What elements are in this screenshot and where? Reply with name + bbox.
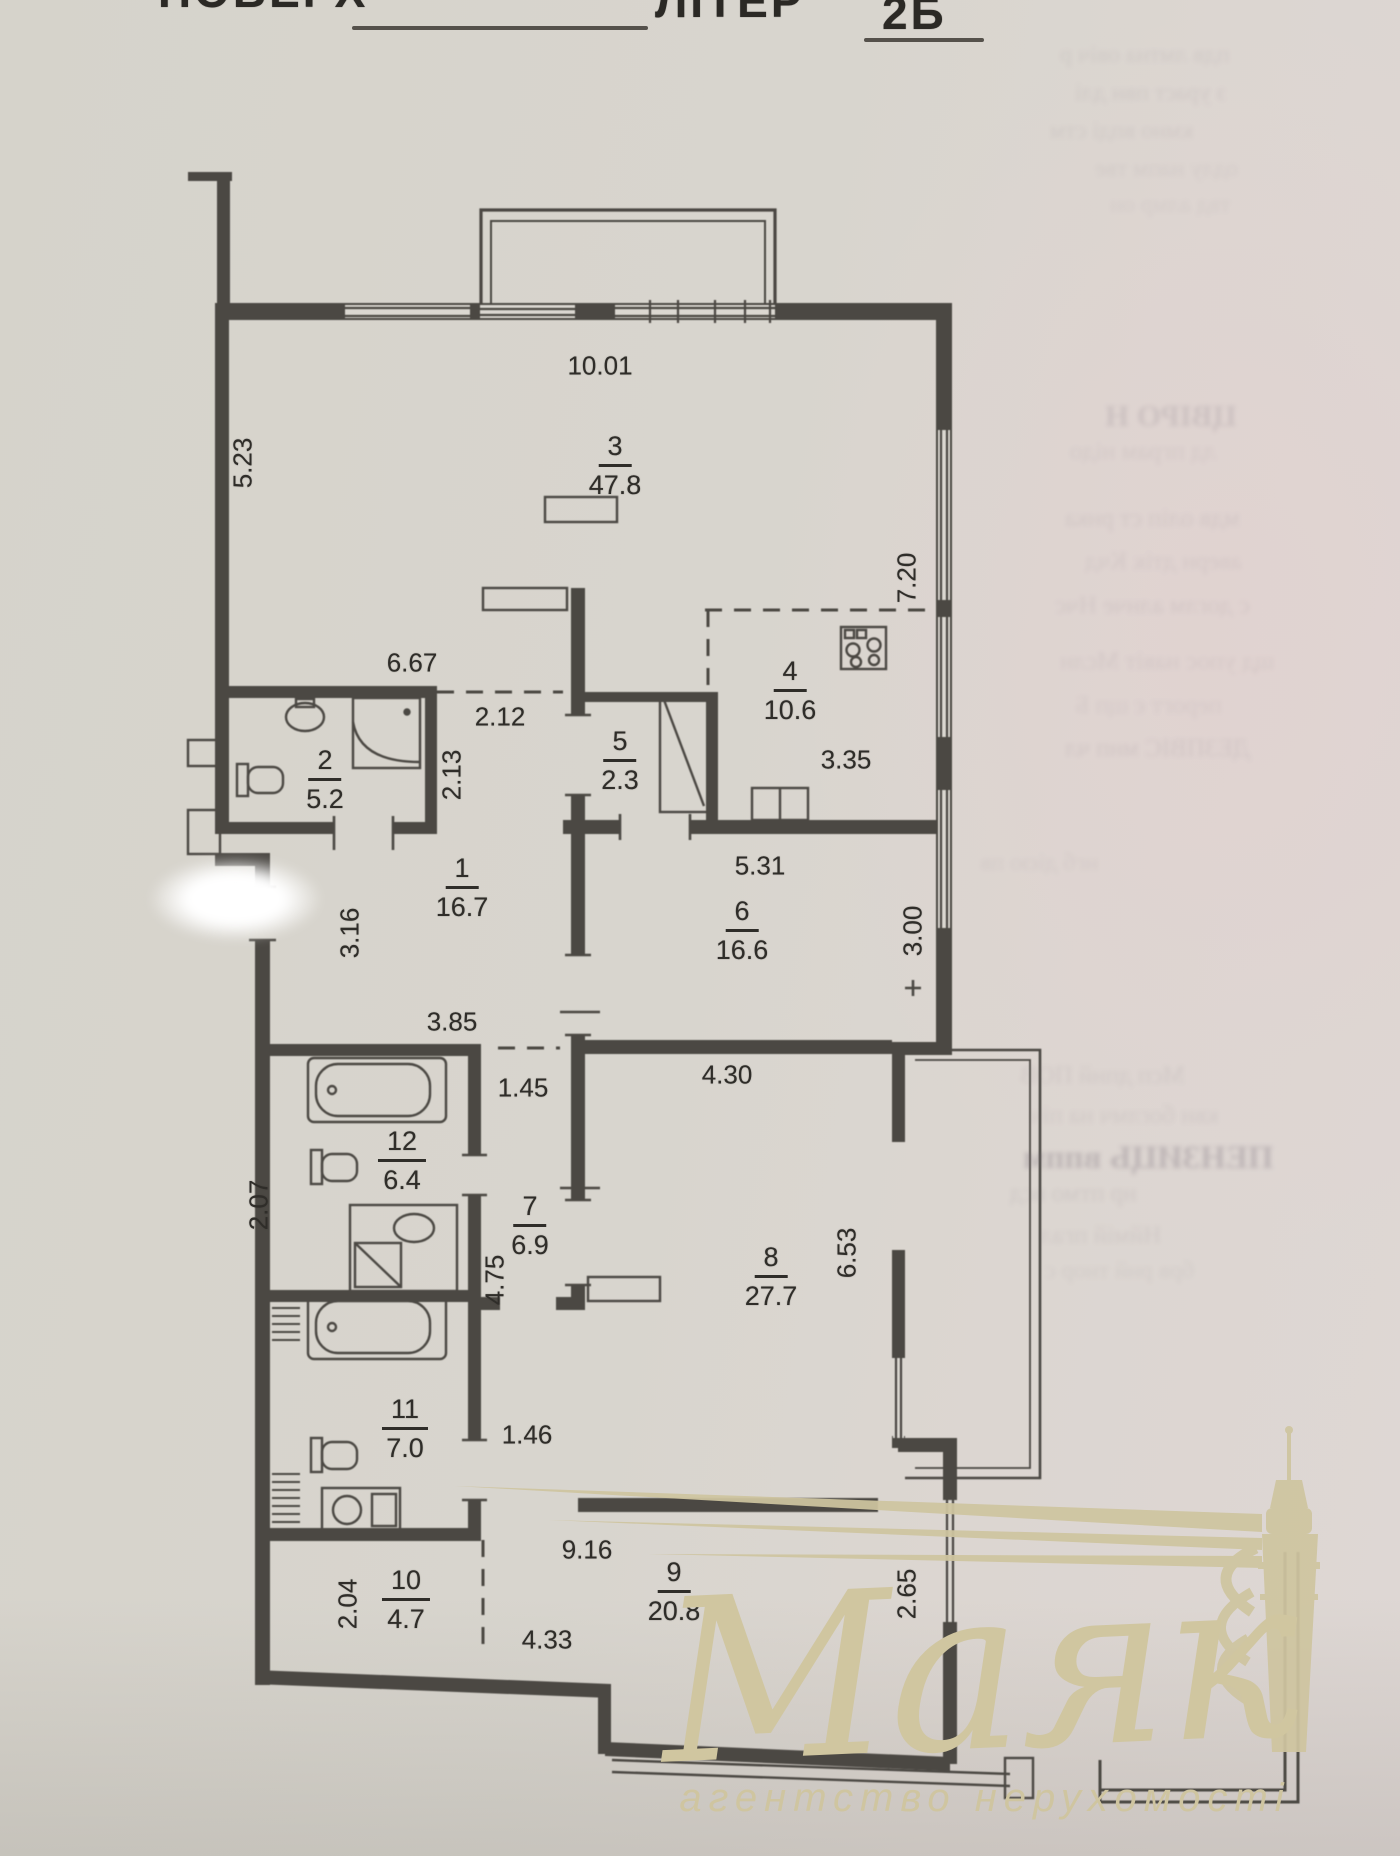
flash-glare [148,856,323,942]
scanned-floor-plan-page: ПОВЕРХ ЛІТЕР 2Б [0,0,1400,1856]
watermark-agency-subtitle: агентство нерухомості [600,1776,1370,1821]
watermark-agency-name: Маяк [593,1542,1362,1801]
